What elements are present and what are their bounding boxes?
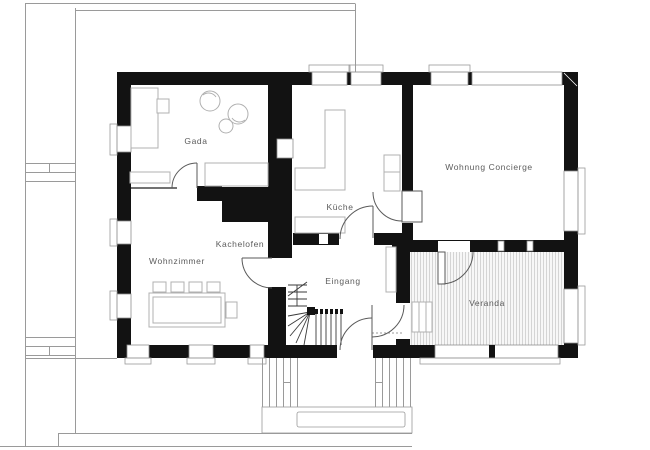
door-wohnzimmer xyxy=(242,258,272,288)
window-concierge-east xyxy=(564,171,578,231)
low-cabinet xyxy=(130,172,170,183)
window-gada xyxy=(117,126,131,152)
door-kueche-concierge xyxy=(373,191,422,222)
window-kitchen-1 xyxy=(312,72,347,85)
kitchen-shaft xyxy=(384,155,400,191)
exterior-stair-left-flight xyxy=(263,358,298,407)
window-wohnzimmer-1 xyxy=(117,221,131,244)
furniture-veranda xyxy=(412,302,432,332)
kachelofen-stove-mass xyxy=(222,187,268,222)
armchair-1 xyxy=(200,91,220,111)
chair xyxy=(157,99,169,113)
kitchen-counter xyxy=(295,110,345,190)
radiator-hall xyxy=(386,247,396,292)
stair-newel xyxy=(307,307,315,315)
floor-plan: Gada Wohnung Concierge Küche Kachelofen … xyxy=(0,0,650,450)
window-wohnzimmer-south-1 xyxy=(127,345,149,358)
bench xyxy=(205,163,268,186)
dining-chair xyxy=(207,282,220,292)
interior-staircase xyxy=(288,282,343,345)
dining-table xyxy=(149,293,225,327)
exterior-stair-right-flight xyxy=(376,358,411,407)
window-wohnzimmer-2 xyxy=(117,294,131,318)
sideboard xyxy=(131,88,158,148)
dining-chair xyxy=(171,282,184,292)
furniture-wohnzimmer xyxy=(149,282,237,327)
kitchen-lower-counter xyxy=(295,217,345,233)
window-concierge-1 xyxy=(431,72,468,85)
floor-plan-svg: Gada Wohnung Concierge Küche Kachelofen … xyxy=(0,0,650,450)
radiator-veranda xyxy=(412,302,432,332)
chimney-niche xyxy=(277,139,293,158)
entrance-doormat xyxy=(297,412,405,427)
window-wohnzimmer-south-2 xyxy=(189,345,213,358)
furniture-kueche xyxy=(295,110,345,233)
wohnzimmer-hall-wall xyxy=(268,287,286,345)
label-wohnung-concierge: Wohnung Concierge xyxy=(445,162,533,172)
door-gada xyxy=(172,163,197,188)
side-porch-outline xyxy=(25,164,75,356)
side-chair xyxy=(226,302,237,318)
concierge-veranda-wall xyxy=(392,240,565,252)
label-wohnzimmer: Wohnzimmer xyxy=(149,256,205,266)
exterior-entrance-stairs xyxy=(262,358,412,433)
window-hall-south xyxy=(250,345,264,358)
label-eingang: Eingang xyxy=(325,276,360,286)
label-kueche: Küche xyxy=(326,202,353,212)
side-table xyxy=(219,119,233,133)
entrance-landing xyxy=(262,407,412,433)
chimney-wall xyxy=(268,85,292,258)
window-veranda-east xyxy=(564,289,578,343)
window-concierge-2 xyxy=(472,72,562,85)
dining-chair xyxy=(153,282,166,292)
dining-chair xyxy=(189,282,202,292)
label-kachelofen: Kachelofen xyxy=(216,239,265,249)
window-kitchen-2 xyxy=(351,72,381,85)
furniture-eingang xyxy=(386,247,396,292)
entrance-door-opening xyxy=(337,345,373,358)
label-veranda: Veranda xyxy=(469,298,505,308)
label-gada: Gada xyxy=(184,136,207,146)
veranda-south-glazing xyxy=(435,345,558,358)
